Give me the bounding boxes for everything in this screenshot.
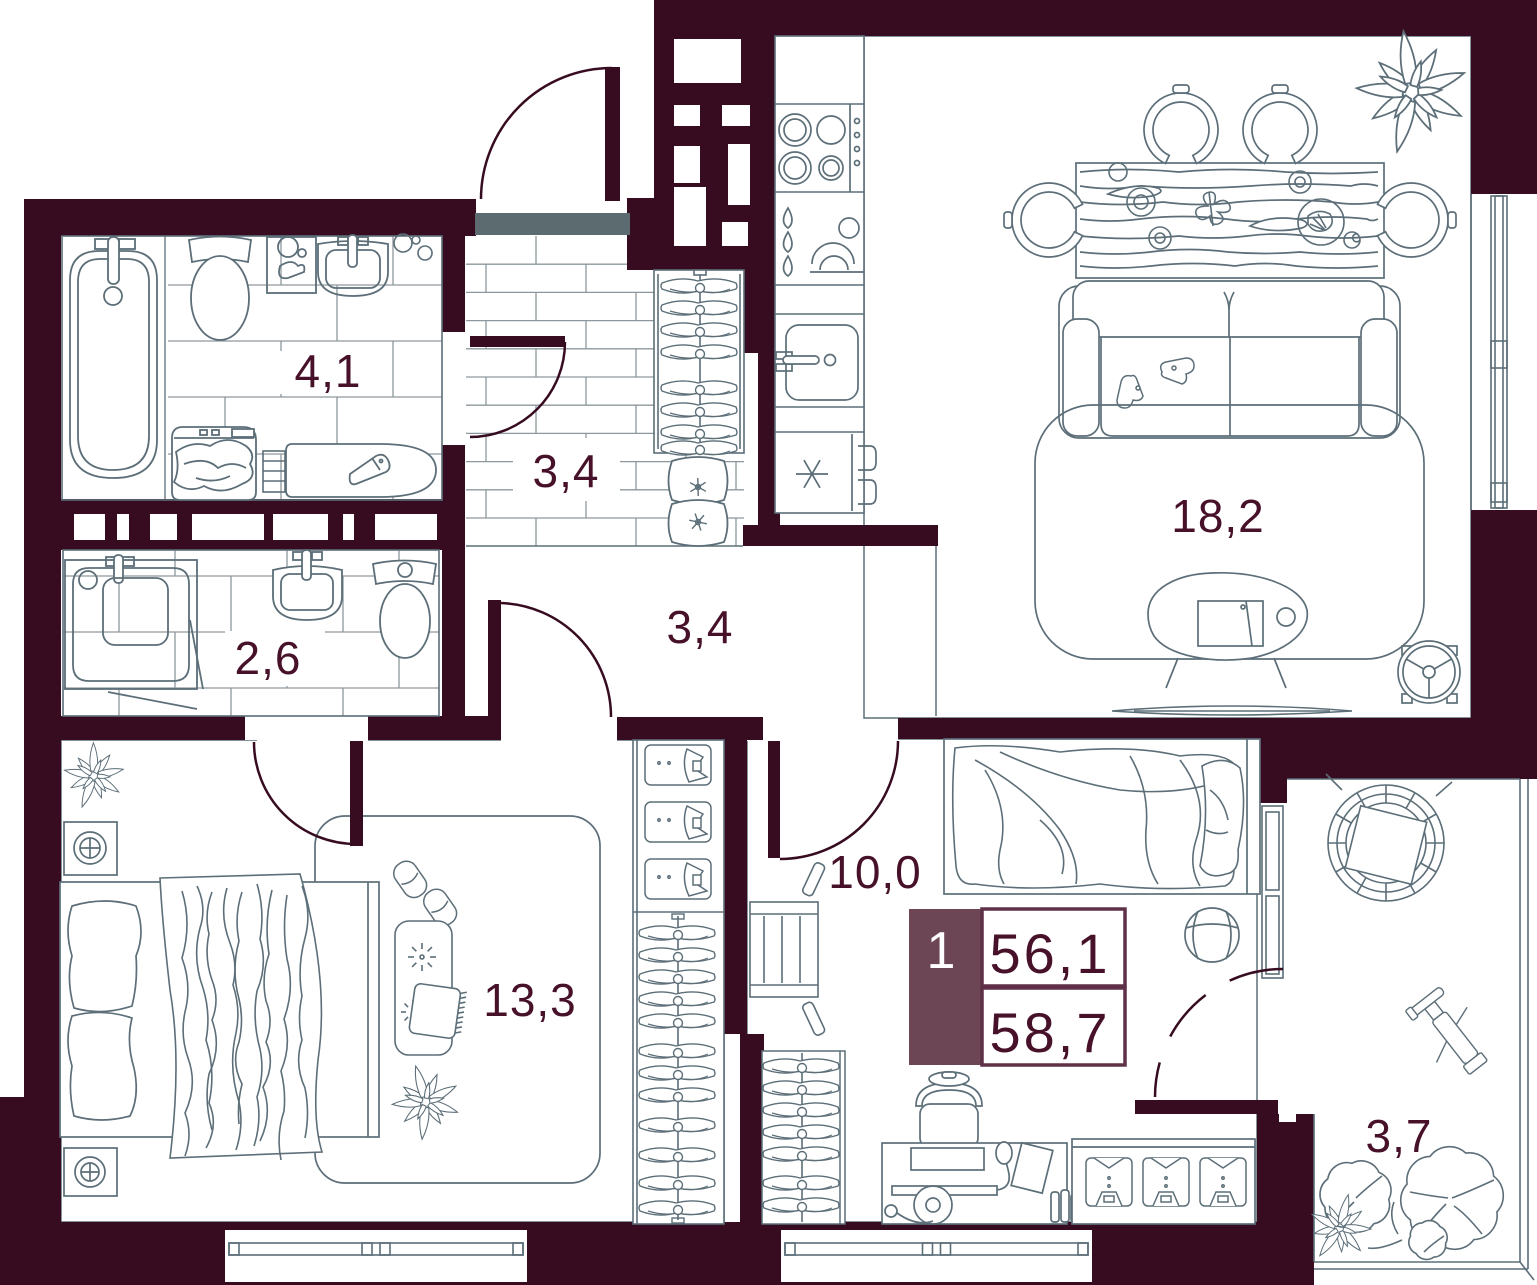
svg-text:56,1: 56,1 <box>990 922 1111 985</box>
svg-text:3,7: 3,7 <box>1366 1110 1433 1162</box>
svg-text:2,6: 2,6 <box>235 632 302 684</box>
svg-text:10,0: 10,0 <box>828 846 922 898</box>
svg-text:3,4: 3,4 <box>667 601 734 653</box>
svg-text:4,1: 4,1 <box>295 345 362 397</box>
svg-text:18,2: 18,2 <box>1171 490 1265 542</box>
svg-text:58,7: 58,7 <box>990 1001 1111 1064</box>
svg-text:13,3: 13,3 <box>483 974 577 1026</box>
svg-text:3,4: 3,4 <box>533 445 600 497</box>
svg-text:1: 1 <box>927 922 956 980</box>
